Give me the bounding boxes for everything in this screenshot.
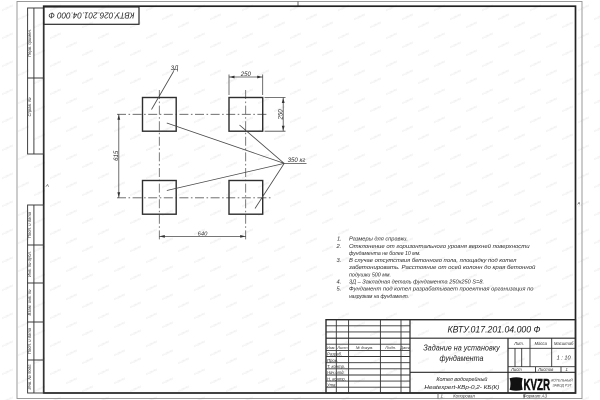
svg-text:Т. контр.: Т. контр. xyxy=(327,364,345,369)
svg-text:Лит.: Лит. xyxy=(513,341,524,346)
svg-text:Утв.: Утв. xyxy=(327,382,337,387)
svg-text:350 кг: 350 кг xyxy=(288,157,306,164)
svg-text:Задание на установку: Задание на установку xyxy=(423,344,500,353)
svg-text:Инв. № дубл.: Инв. № дубл. xyxy=(27,251,32,277)
svg-text:Листов: Листов xyxy=(537,367,554,372)
svg-text:Копировал: Копировал xyxy=(453,394,475,399)
svg-text:1: 1 xyxy=(566,367,568,372)
svg-text:Пров.: Пров. xyxy=(327,358,338,363)
svg-text:Масса: Масса xyxy=(535,341,548,346)
svg-text:Heatexpert-КВр-0,2- КБ(К): Heatexpert-КВр-0,2- КБ(К) xyxy=(424,385,499,391)
svg-text:подушки 500 мм.: подушки 500 мм. xyxy=(349,272,391,278)
svg-text:3Д – Закладная деталь фундамен: 3Д – Закладная деталь фундамента 250х250… xyxy=(349,280,484,286)
svg-text:1.: 1. xyxy=(337,237,342,243)
svg-text:Н. контр.: Н. контр. xyxy=(327,376,346,381)
svg-text:Взам. инв. №: Взам. инв. № xyxy=(27,289,32,315)
svg-text:Масштаб: Масштаб xyxy=(554,341,574,346)
svg-text:Нач.отд.: Нач.отд. xyxy=(327,370,345,375)
svg-text:КВТУ.026.201.04.000 Ф: КВТУ.026.201.04.000 Ф xyxy=(48,11,134,21)
svg-text:А: А xyxy=(576,201,580,206)
svg-text:нагрузкам на фундамент.: нагрузкам на фундамент. xyxy=(349,294,409,300)
svg-text:1 : 10: 1 : 10 xyxy=(557,356,572,362)
svg-text:Справ. №: Справ. № xyxy=(27,97,32,116)
svg-text:А: А xyxy=(45,183,49,188)
svg-text:фундамента не более 10 мм.: фундамента не более 10 мм. xyxy=(349,251,421,257)
svg-text:Изм.: Изм. xyxy=(327,345,336,350)
svg-text:3.: 3. xyxy=(337,258,342,264)
svg-text:615: 615 xyxy=(113,150,120,161)
svg-text:KVZR: KVZR xyxy=(524,377,551,394)
svg-text:Лист: Лист xyxy=(510,367,522,372)
svg-text:Разраб.: Разраб. xyxy=(327,352,342,357)
svg-text:Размеры для справки.: Размеры для справки. xyxy=(349,237,408,243)
svg-text:Инв. № подл.: Инв. № подл. xyxy=(27,364,32,390)
svg-text:Подп.: Подп. xyxy=(385,345,396,350)
svg-text:Дата: Дата xyxy=(399,345,411,350)
svg-text:В случае отсутствия бетонного: В случае отсутствия бетонного пола, площ… xyxy=(349,258,517,264)
svg-text:5.: 5. xyxy=(337,287,342,293)
svg-text:640: 640 xyxy=(198,231,208,237)
svg-text:ЗАВОД РЭТ: ЗАВОД РЭТ xyxy=(552,384,572,388)
svg-text:Формат А3: Формат А3 xyxy=(523,394,548,399)
svg-text:фундамента: фундамента xyxy=(440,354,484,363)
svg-text:№ докум.: № докум. xyxy=(356,345,374,350)
svg-text:Отклонение от горизонтального: Отклонение от горизонтального уровня вер… xyxy=(349,243,530,250)
svg-text:4.: 4. xyxy=(337,280,342,286)
svg-text:Перв. примен.: Перв. примен. xyxy=(27,29,32,57)
svg-text:Подп. и дата: Подп. и дата xyxy=(27,327,32,354)
svg-text:Котел водогрейный: Котел водогрейный xyxy=(436,376,488,383)
svg-text:3Д: 3Д xyxy=(171,65,179,72)
svg-text:250: 250 xyxy=(278,109,285,121)
svg-text:Фундамент под котел разрабатыв: Фундамент под котел разрабатывает проект… xyxy=(349,287,534,293)
svg-text:забетонировать. Расстояние от: забетонировать. Расстояние от осей колон… xyxy=(348,264,536,271)
svg-text:250: 250 xyxy=(240,72,252,78)
svg-text:Лист: Лист xyxy=(336,345,348,350)
svg-text:2.: 2. xyxy=(336,244,342,250)
svg-text:КВТУ.017.201.04.000 Ф: КВТУ.017.201.04.000 Ф xyxy=(448,325,541,336)
svg-text:Подп. и дата: Подп. и дата xyxy=(27,211,32,238)
svg-text:КОТЕЛЬНЫЙ: КОТЕЛЬНЫЙ xyxy=(551,379,573,383)
